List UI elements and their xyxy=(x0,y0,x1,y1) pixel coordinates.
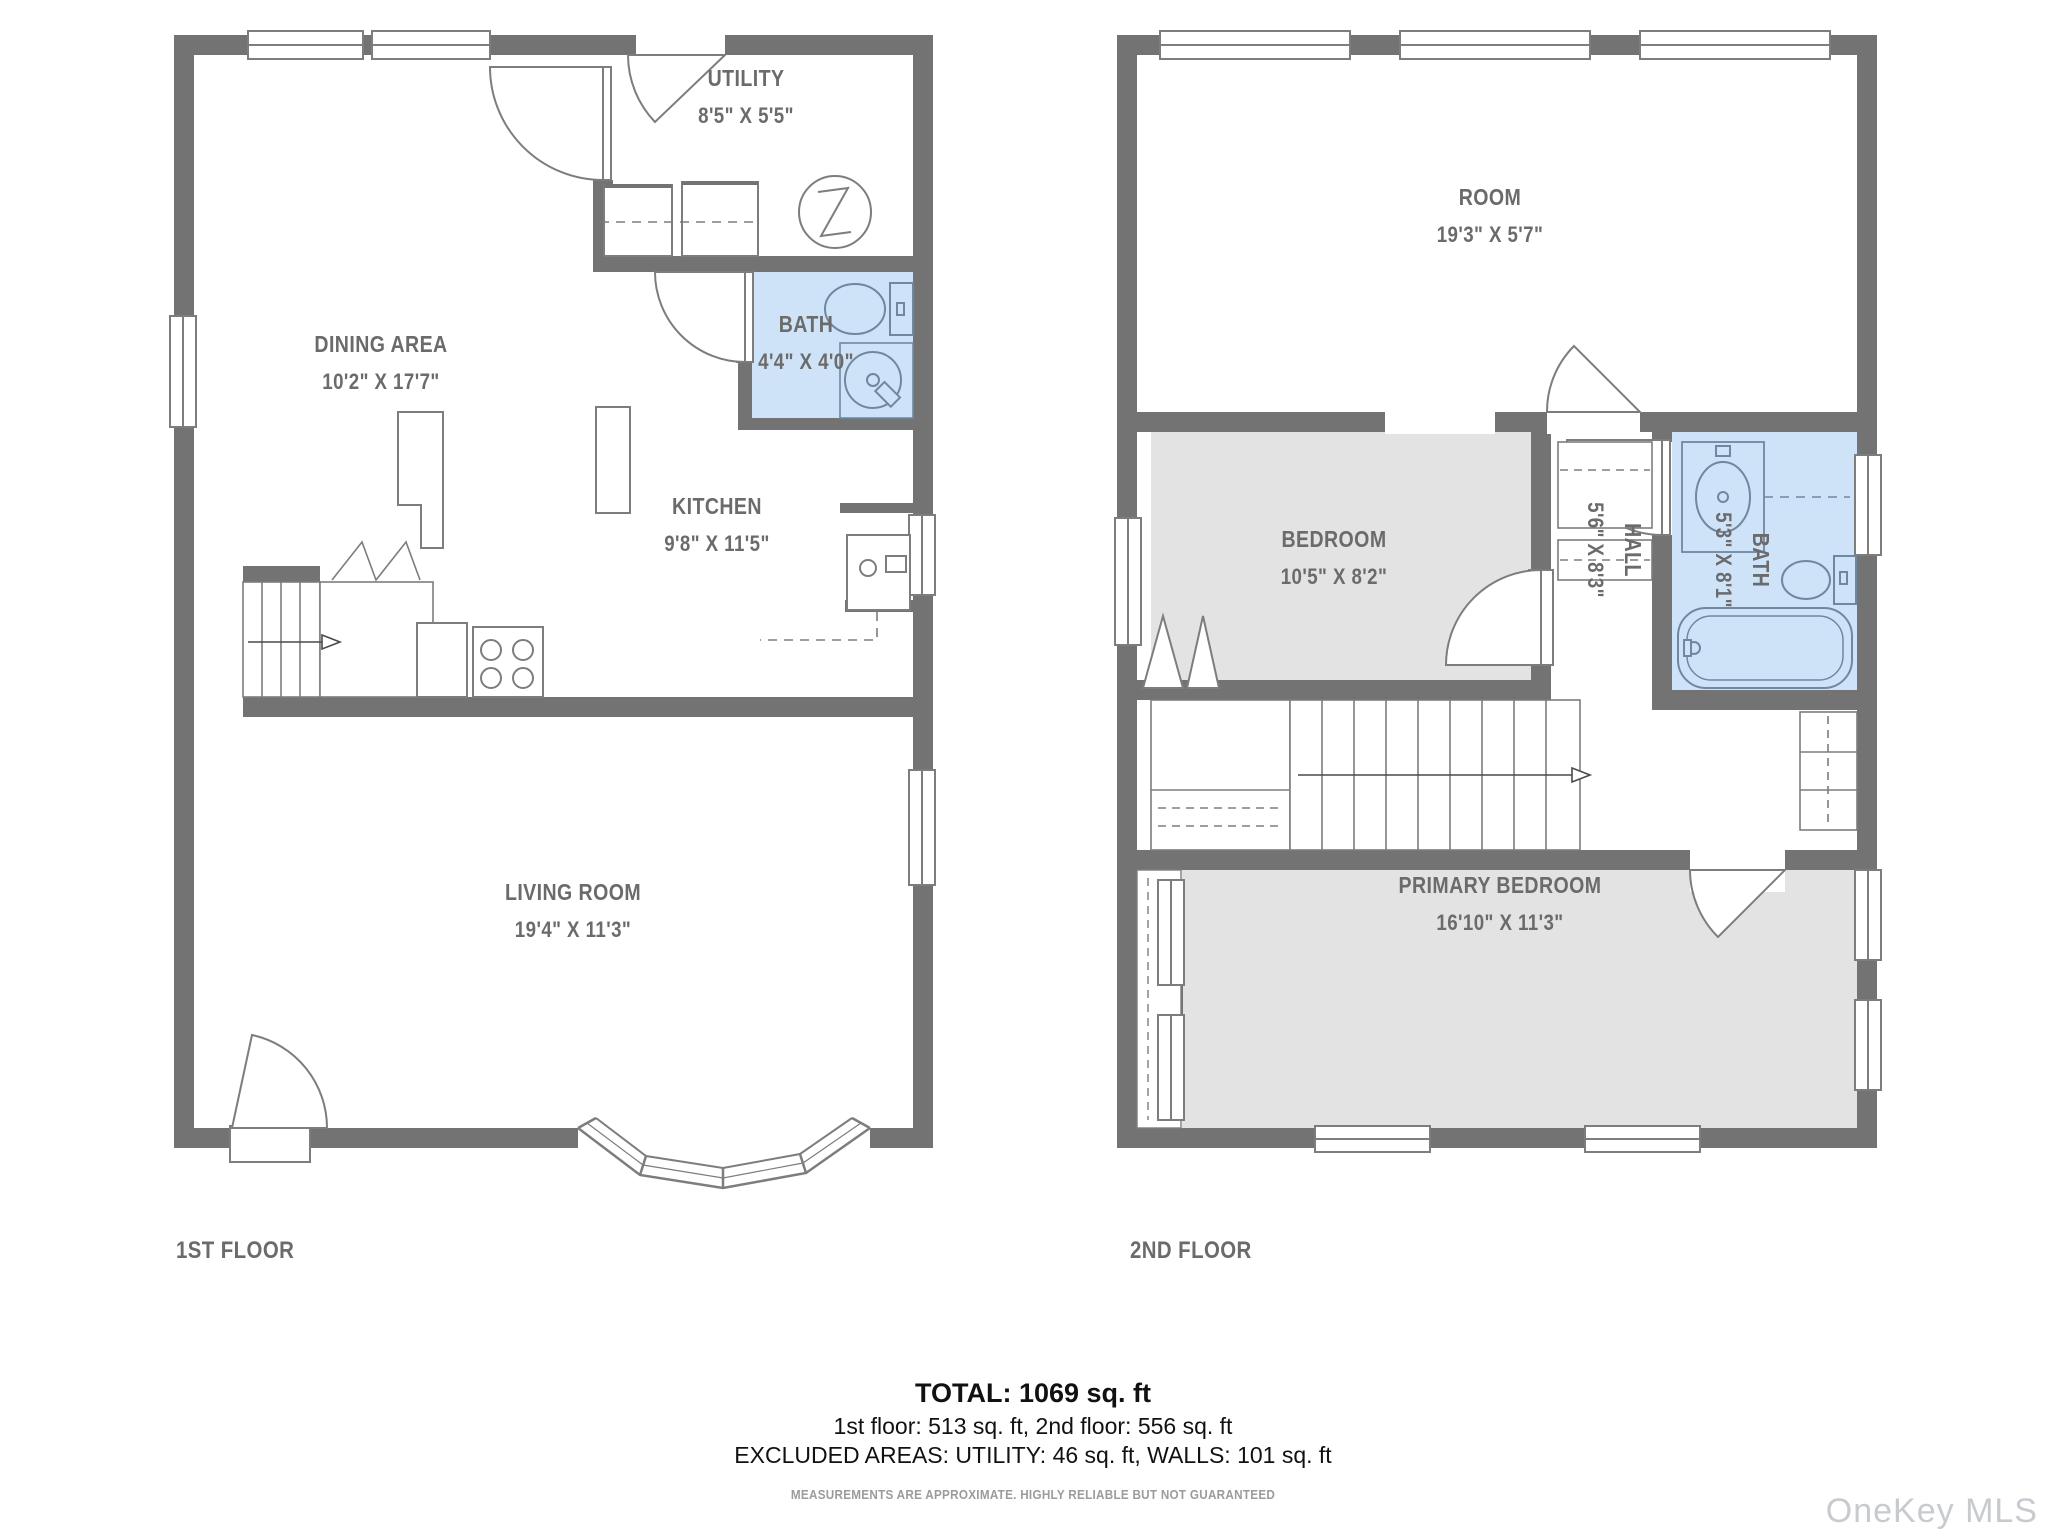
cased-opening xyxy=(1385,410,1495,434)
door-arc-dining xyxy=(490,67,603,180)
room-label-bath1: BATH 4'4" X 4'0" xyxy=(758,306,854,380)
room-name: LIVING ROOM xyxy=(505,874,641,911)
room-name: UTILITY xyxy=(698,60,794,97)
room-label-hall: HALL 5'6" X 8'3" xyxy=(1577,502,1651,598)
disclaimer-text: MEASUREMENTS ARE APPROXIMATE. HIGHLY REL… xyxy=(791,1487,1275,1502)
stairs-second-floor xyxy=(1151,700,1857,850)
stair-landing xyxy=(1151,700,1290,850)
kitchen-fixtures xyxy=(398,407,910,697)
dryer-icon xyxy=(682,182,758,256)
room-label-room2: ROOM 19'3" X 5'7" xyxy=(1437,179,1544,253)
bay-window-icon xyxy=(578,1118,870,1188)
room-dims: 10'2" X 17'7" xyxy=(314,363,447,400)
stove-icon xyxy=(473,627,543,697)
room-name: ROOM xyxy=(1437,179,1544,216)
room-label-bath2: BATH 5'3" X 8'1" xyxy=(1705,512,1779,608)
kitchen-alcove xyxy=(398,412,443,548)
utility-fixtures xyxy=(600,176,871,256)
room-dims: 5'3" X 8'1" xyxy=(1705,512,1742,608)
room-dims: 10'5" X 8'2" xyxy=(1281,558,1388,595)
stairs-direction-arrow xyxy=(1572,768,1590,782)
watermark: OneKey MLS xyxy=(1826,1492,2038,1531)
first-floor-plan xyxy=(170,31,935,1188)
room-label-primary: PRIMARY BEDROOM 16'10" X 11'3" xyxy=(1399,867,1602,941)
room-label-bedroom: BEDROOM 10'5" X 8'2" xyxy=(1281,521,1388,595)
floor-plan-page: UTILITY 8'5" X 5'5" DINING AREA 10'2" X … xyxy=(0,0,2048,1536)
door-arc-bath1 xyxy=(655,272,745,362)
floor-areas: 1st floor: 513 sq. ft, 2nd floor: 556 sq… xyxy=(734,1413,1331,1440)
room-name: PRIMARY BEDROOM xyxy=(1399,867,1602,904)
floor-plan-drawing xyxy=(0,0,2048,1536)
room-name: KITCHEN xyxy=(664,488,770,525)
room-dims: 8'5" X 5'5" xyxy=(698,97,794,134)
room-dims: 19'3" X 5'7" xyxy=(1437,216,1544,253)
room-label-living: LIVING ROOM 19'4" X 11'3" xyxy=(505,874,641,948)
room-name: BEDROOM xyxy=(1281,521,1388,558)
room-dims: 5'6" X 8'3" xyxy=(1577,502,1614,598)
room-name: HALL xyxy=(1614,502,1651,598)
stairs-first-floor xyxy=(243,542,433,697)
front-door-sill xyxy=(230,1126,310,1162)
room-dims: 4'4" X 4'0" xyxy=(758,343,854,380)
fridge-icon xyxy=(417,623,467,697)
room-label-dining: DINING AREA 10'2" X 17'7" xyxy=(314,326,447,400)
second-floor-label: 2ND FLOOR xyxy=(1130,1237,1252,1265)
room-dims: 16'10" X 11'3" xyxy=(1399,904,1602,941)
room-label-utility: UTILITY 8'5" X 5'5" xyxy=(698,60,794,134)
hall-closet xyxy=(1800,712,1857,830)
total-area: TOTAL: 1069 sq. ft xyxy=(734,1378,1331,1409)
washer-icon xyxy=(604,185,672,256)
room-dims: 9'8" X 11'5" xyxy=(664,525,770,562)
kitchen-duct xyxy=(596,407,630,513)
counter-dashed-line xyxy=(760,612,877,640)
bifold-door-icon xyxy=(332,542,420,580)
excluded-areas: EXCLUDED AREAS: UTILITY: 46 sq. ft, WALL… xyxy=(734,1442,1331,1469)
area-summary: TOTAL: 1069 sq. ft 1st floor: 513 sq. ft… xyxy=(734,1378,1331,1471)
room-name: DINING AREA xyxy=(314,326,447,363)
room-dims: 19'4" X 11'3" xyxy=(505,911,641,948)
door-arc-room xyxy=(1547,346,1640,412)
first-floor-label: 1ST FLOOR xyxy=(176,1237,294,1265)
room-name: BATH xyxy=(1742,512,1779,608)
door-arc-entry xyxy=(232,1035,327,1128)
room-name: BATH xyxy=(758,306,854,343)
room-label-kitchen: KITCHEN 9'8" X 11'5" xyxy=(664,488,770,562)
